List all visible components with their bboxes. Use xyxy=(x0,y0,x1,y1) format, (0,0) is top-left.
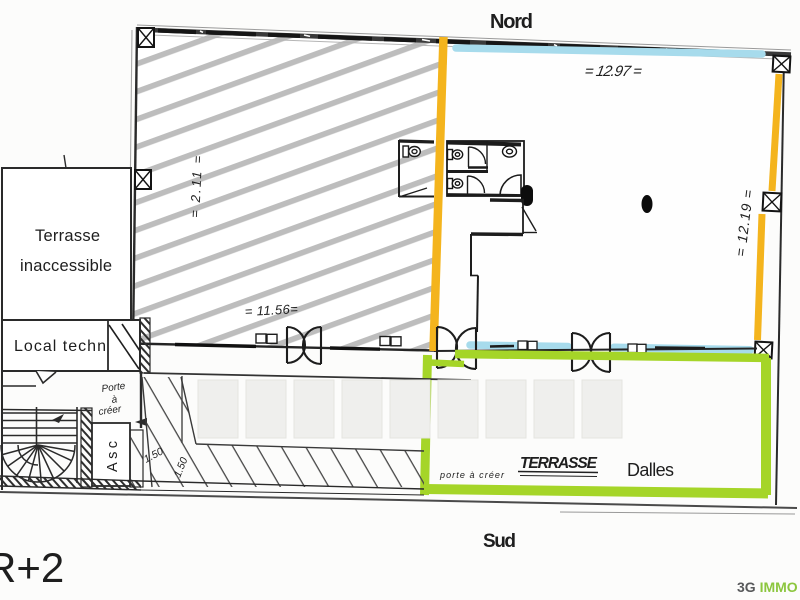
svg-text:Nord: Nord xyxy=(490,11,533,33)
svg-text:inaccessible: inaccessible xyxy=(20,257,112,275)
svg-text:= 11.56=: = 11.56= xyxy=(244,301,298,319)
svg-text:R+2: R+2 xyxy=(0,544,64,591)
svg-text:Sud: Sud xyxy=(483,531,516,552)
svg-text:Asc: Asc xyxy=(105,441,121,472)
svg-text:TERRASSE: TERRASSE xyxy=(520,455,598,472)
svg-text:porte à créer: porte à créer xyxy=(439,470,505,480)
svg-text:Terrasse: Terrasse xyxy=(35,227,100,245)
svg-text:Local techn: Local techn xyxy=(14,338,106,355)
svg-text:Dalles: Dalles xyxy=(627,460,674,480)
svg-text:3G IMMO: 3G IMMO xyxy=(737,579,798,595)
svg-text:= 12.97 =: = 12.97 = xyxy=(583,63,643,80)
